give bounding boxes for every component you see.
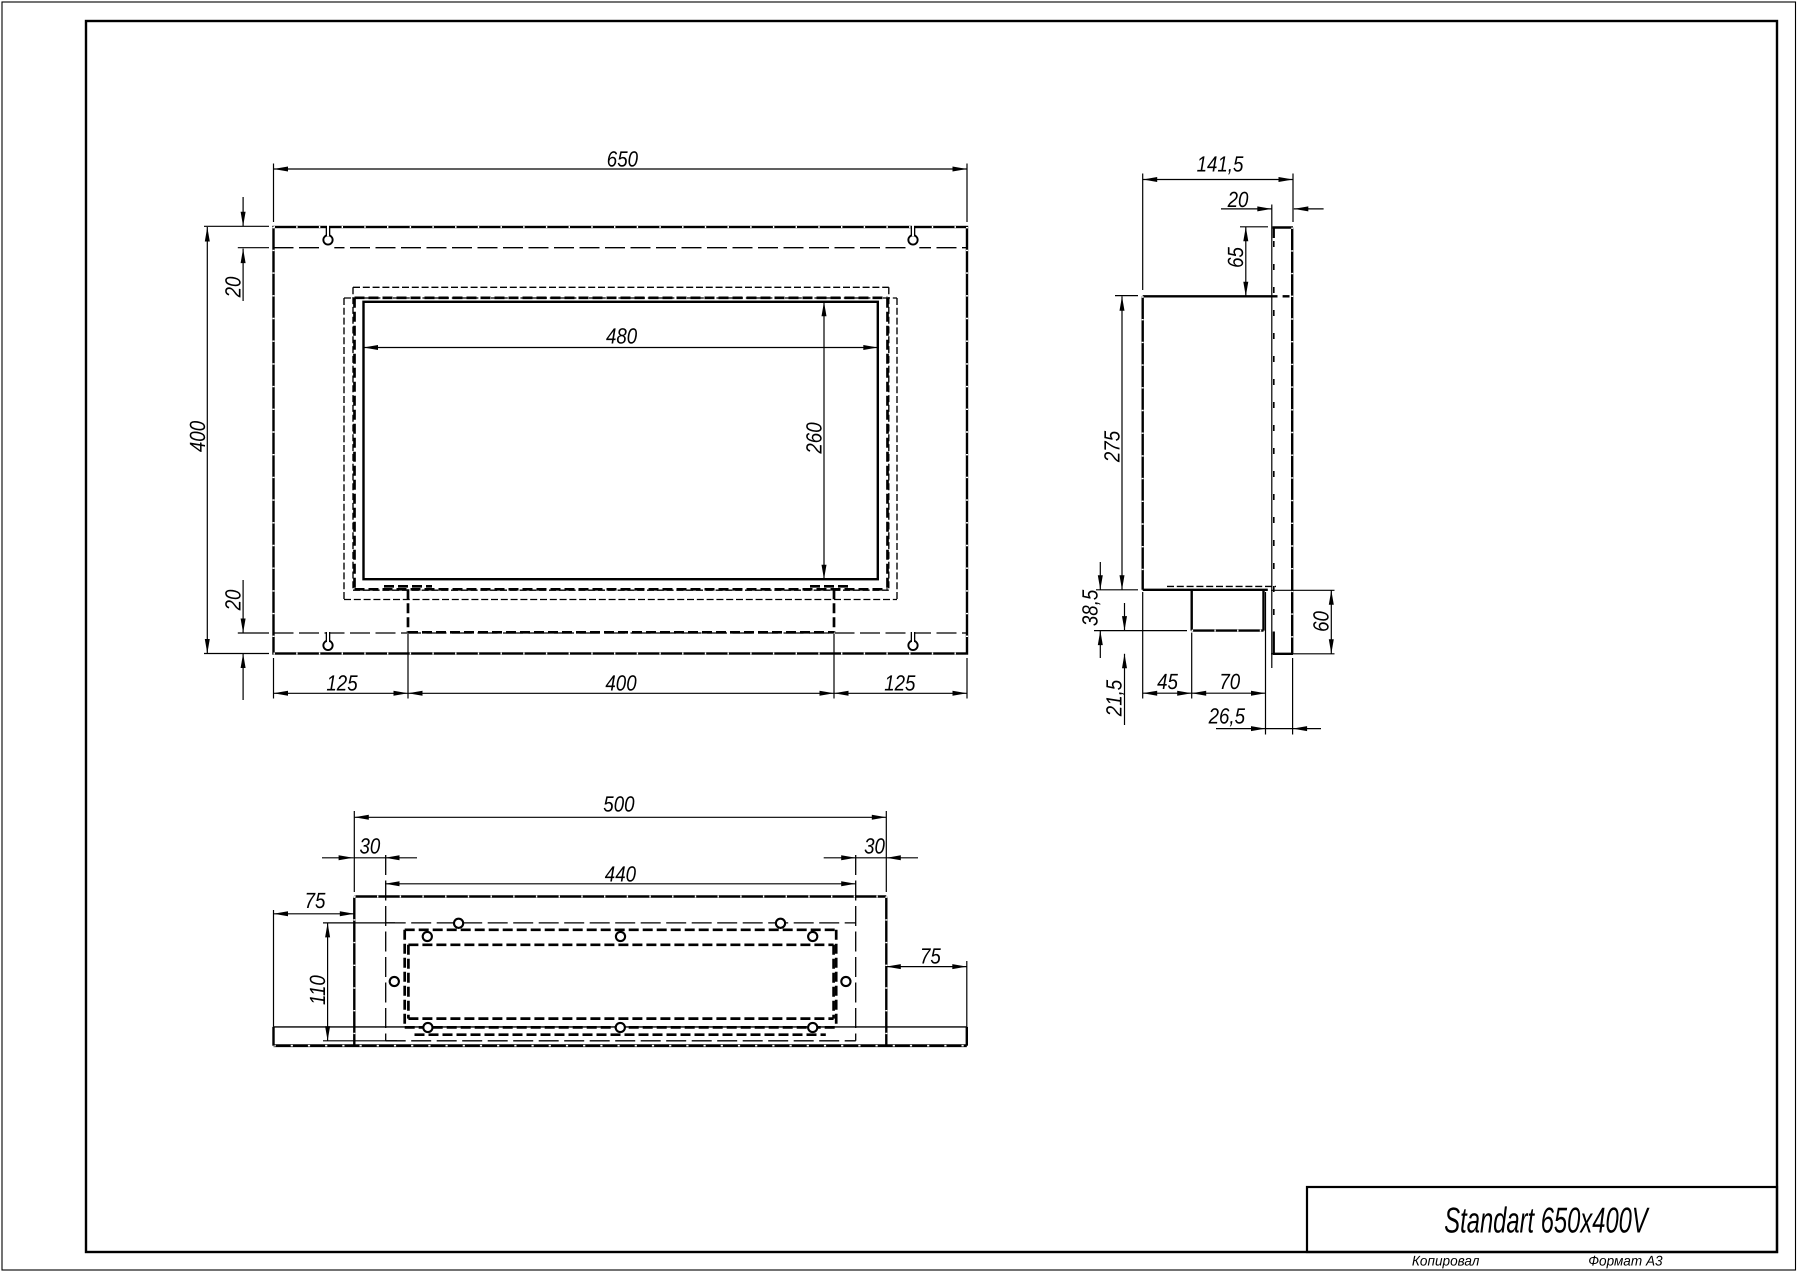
svg-text:20: 20 bbox=[1227, 187, 1249, 212]
svg-text:45: 45 bbox=[1157, 669, 1178, 694]
svg-text:Копировал: Копировал bbox=[1412, 1253, 1480, 1269]
svg-text:Формат А3: Формат А3 bbox=[1588, 1253, 1663, 1269]
svg-text:65: 65 bbox=[1223, 246, 1248, 267]
svg-text:650: 650 bbox=[607, 146, 639, 171]
svg-text:125: 125 bbox=[884, 670, 916, 695]
svg-text:30: 30 bbox=[864, 834, 885, 859]
svg-text:141,5: 141,5 bbox=[1197, 152, 1244, 177]
svg-text:20: 20 bbox=[221, 589, 246, 611]
svg-text:125: 125 bbox=[326, 670, 358, 695]
svg-text:20: 20 bbox=[221, 276, 246, 298]
svg-text:38,5: 38,5 bbox=[1078, 589, 1103, 626]
svg-text:30: 30 bbox=[359, 834, 380, 859]
svg-text:440: 440 bbox=[605, 861, 637, 886]
svg-text:260: 260 bbox=[801, 422, 826, 455]
svg-text:26,5: 26,5 bbox=[1208, 703, 1246, 728]
svg-text:Standart 650x400V: Standart 650x400V bbox=[1444, 1200, 1649, 1241]
svg-text:275: 275 bbox=[1099, 430, 1124, 463]
svg-text:480: 480 bbox=[606, 324, 638, 349]
svg-text:500: 500 bbox=[603, 792, 635, 817]
svg-text:400: 400 bbox=[185, 420, 210, 452]
svg-text:110: 110 bbox=[305, 975, 330, 1005]
svg-text:70: 70 bbox=[1219, 669, 1240, 694]
svg-text:60: 60 bbox=[1309, 610, 1334, 631]
svg-text:21,5: 21,5 bbox=[1102, 679, 1127, 717]
svg-text:75: 75 bbox=[305, 888, 326, 913]
svg-text:400: 400 bbox=[605, 670, 637, 695]
svg-text:75: 75 bbox=[920, 943, 941, 968]
